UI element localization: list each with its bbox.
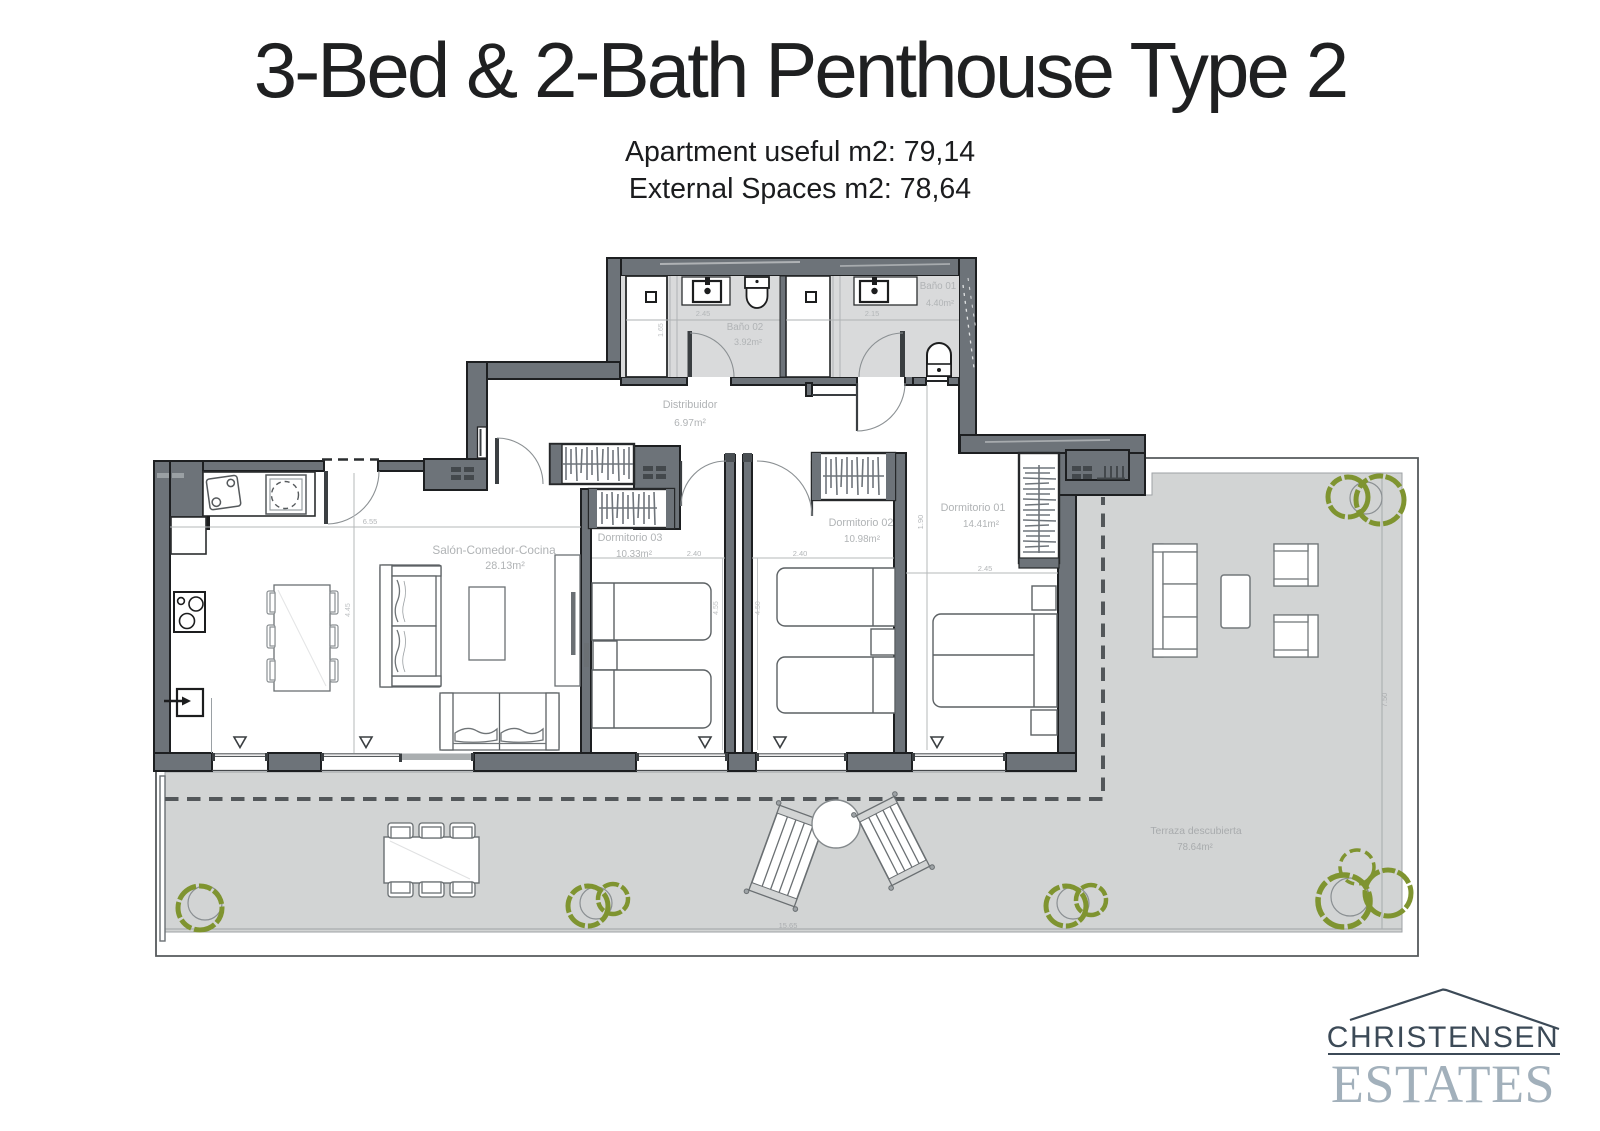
svg-text:4.55: 4.55 xyxy=(713,601,720,615)
svg-text:Dormitorio 02: Dormitorio 02 xyxy=(829,517,894,529)
svg-text:4.40m²: 4.40m² xyxy=(926,298,954,308)
svg-text:4.50: 4.50 xyxy=(755,601,762,615)
svg-text:1.90: 1.90 xyxy=(916,515,925,530)
svg-text:Terraza descubierta: Terraza descubierta xyxy=(1150,826,1241,837)
svg-text:2.45: 2.45 xyxy=(978,564,993,573)
svg-text:Apartment useful m2: 79,14: Apartment useful m2: 79,14 xyxy=(625,136,975,168)
svg-text:2.45: 2.45 xyxy=(696,309,711,318)
svg-text:7.50: 7.50 xyxy=(1380,693,1389,708)
svg-text:Baño 02: Baño 02 xyxy=(727,322,764,333)
svg-text:Salón-Comedor-Cocina: Salón-Comedor-Cocina xyxy=(432,543,556,557)
svg-text:4.45: 4.45 xyxy=(345,603,352,617)
svg-text:External Spaces m2: 78,64: External Spaces m2: 78,64 xyxy=(629,173,971,205)
svg-text:6.55: 6.55 xyxy=(363,517,378,526)
svg-text:10.98m²: 10.98m² xyxy=(844,534,881,545)
svg-text:Dormitorio 01: Dormitorio 01 xyxy=(941,502,1006,514)
svg-text:Dormitorio 03: Dormitorio 03 xyxy=(598,532,663,544)
svg-text:2.40: 2.40 xyxy=(687,549,702,558)
svg-text:CHRISTENSEN: CHRISTENSEN xyxy=(1327,1021,1560,1054)
svg-text:14.41m²: 14.41m² xyxy=(963,519,1000,530)
svg-text:6.97m²: 6.97m² xyxy=(674,418,706,429)
svg-text:ESTATES: ESTATES xyxy=(1331,1054,1555,1114)
svg-text:28.13m²: 28.13m² xyxy=(485,560,525,572)
svg-text:Distribuidor: Distribuidor xyxy=(663,399,718,411)
svg-text:1.65: 1.65 xyxy=(658,323,665,337)
svg-text:Baño 01: Baño 01 xyxy=(920,281,957,292)
svg-text:2.15: 2.15 xyxy=(865,309,880,318)
svg-text:2.40: 2.40 xyxy=(793,549,808,558)
svg-text:78.64m²: 78.64m² xyxy=(1177,842,1213,853)
svg-text:3-Bed & 2-Bath Penthouse Type: 3-Bed & 2-Bath Penthouse Type 2 xyxy=(254,26,1346,114)
svg-text:3.92m²: 3.92m² xyxy=(734,337,762,347)
svg-text:15.65: 15.65 xyxy=(779,921,798,930)
